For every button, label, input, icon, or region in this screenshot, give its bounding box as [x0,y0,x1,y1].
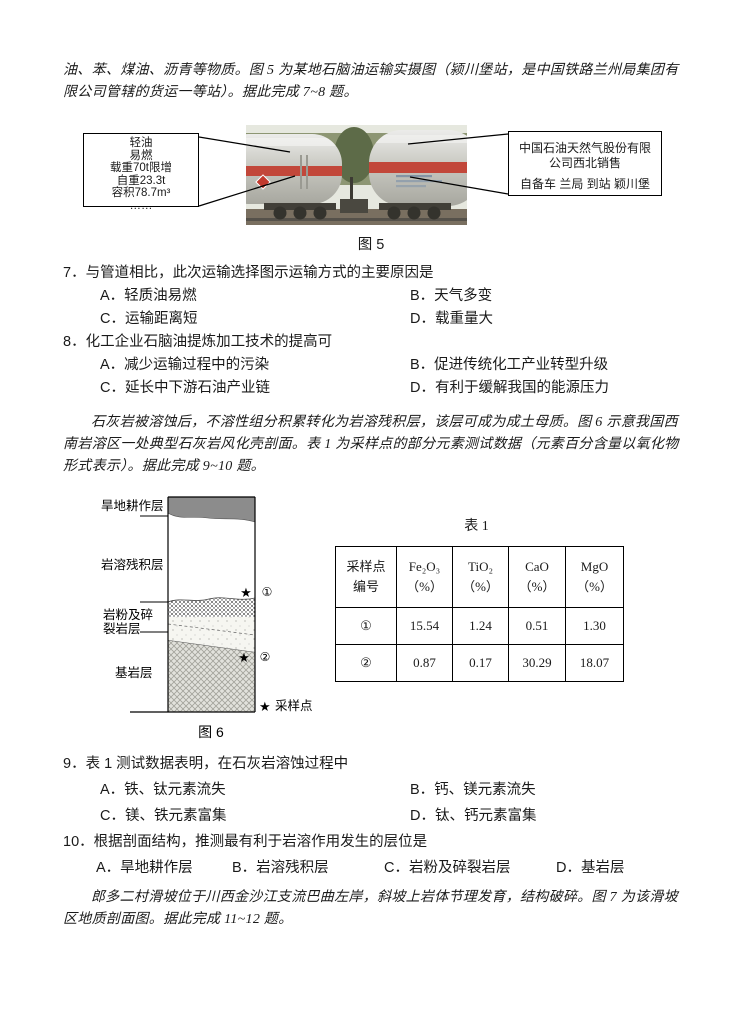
header-formula: TiO₂ [453,557,508,577]
callout-line [199,176,295,206]
cell-sample-1-id: ① [336,608,397,645]
callout-lines [63,125,677,225]
table1-caption: 表 1 [335,517,618,537]
question-8: 8．化工企业石脑油提炼加工技术的提高可 A．减少运输过程中的污染 B．促进传统化… [63,331,679,400]
header-mgo: MgO （%） [566,547,624,608]
sample-star-2: ★ [238,650,250,665]
header-formula: Fe₂O₃ [397,557,452,577]
layer-label-residual: 岩溶残积层 [101,557,164,572]
sample-mark-1: ① [262,585,273,599]
layer-label-topsoil: 旱地耕作层 [101,498,164,513]
figure6-caption: 图 6 [198,724,224,740]
option-8b: B．促进传统化工产业转型升级 [410,354,679,377]
layer-label-bedrock: 基岩层 [115,665,153,680]
figure-6: 旱地耕作层 岩溶残积层 岩粉及碎 裂岩层 基岩层 ★ ① ★ ② ★ 采样点 图… [63,493,335,748]
question-10-stem: 10．根据剖面结构，推测最有利于岩溶作用发生的层位是 [63,829,679,855]
option-9c: C．镁、铁元素富集 [100,803,410,829]
question-8-stem: 8．化工企业石脑油提炼加工技术的提高可 [63,331,679,354]
option-10a: A．旱地耕作层 [96,855,232,881]
table-1-block: 表 1 采样点 编号 Fe₂O₃ （%） TiO₂ （%） [335,493,624,748]
option-8c: C．延长中下游石油产业链 [100,377,410,400]
cell: 18.07 [566,645,624,682]
option-7a: A．轻质油易燃 [100,285,410,308]
weathering-profile-diagram: 旱地耕作层 岩溶残积层 岩粉及碎 裂岩层 基岩层 ★ ① ★ ② ★ 采样点 图… [63,493,325,743]
header-unit: （%） [453,577,508,597]
header-sample-id: 采样点 编号 [336,547,397,608]
layer-label-fractured-2: 裂岩层 [103,621,141,636]
question-7-options-row2: C．运输距离短 D．载重量大 [63,308,679,331]
cell: 1.30 [566,608,624,645]
header-unit: （%） [566,577,623,597]
legend-label: 采样点 [275,698,313,713]
intro-paragraph-limestone: 石灰岩被溶蚀后，不溶性组分积累转化为岩溶残积层，该层可成为成土母质。图 6 示意… [63,412,679,478]
question-10: 10．根据剖面结构，推测最有利于岩溶作用发生的层位是 A．旱地耕作层 B．岩溶残… [63,829,679,881]
question-10-options-row: A．旱地耕作层 B．岩溶残积层 C．岩粉及碎裂岩层 D．基岩层 [96,855,679,881]
option-7c: C．运输距离短 [100,308,410,331]
callout-line [199,137,290,152]
header-tio2: TiO₂ （%） [453,547,509,608]
intro-paragraph-landslide: 郎多二村滑坡位于川西金沙江支流巴曲左岸，斜坡上岩体节理发育，结构破碎。图 7 为… [63,887,679,931]
question-9: 9．表 1 测试数据表明，在石灰岩溶蚀过程中 A．铁、钛元素流失 B．钙、镁元素… [63,751,679,829]
question-7-stem: 7．与管道相比，此次运输选择图示运输方式的主要原因是 [63,262,679,285]
figure6-and-table-row: 旱地耕作层 岩溶残积层 岩粉及碎 裂岩层 基岩层 ★ ① ★ ② ★ 采样点 图… [63,493,679,748]
option-10c: C．岩粉及碎裂岩层 [384,855,556,881]
header-unit: （%） [509,577,565,597]
question-7-options-row1: A．轻质油易燃 B．天气多变 [63,285,679,308]
header-sample-id-line2: 编号 [336,577,396,597]
header-cao: CaO （%） [509,547,566,608]
option-7d: D．载重量大 [410,308,679,331]
table-header-row: 采样点 编号 Fe₂O₃ （%） TiO₂ （%） CaO （%） [336,547,624,608]
table-row: ① 15.54 1.24 0.51 1.30 [336,608,624,645]
option-9d: D．钛、钙元素富集 [410,803,679,829]
header-formula: CaO [509,557,565,577]
figure-5: 轻油 易燃 载重70t限增 自重23.3t 容积78.7m³ …… [63,125,679,225]
callout-line [410,177,508,194]
cell-sample-2-id: ② [336,645,397,682]
header-fe2o3: Fe₂O₃ （%） [397,547,453,608]
cell: 30.29 [509,645,566,682]
header-sample-id-line1: 采样点 [336,557,396,577]
cell: 15.54 [397,608,453,645]
callout-line [408,134,508,144]
cell: 0.17 [453,645,509,682]
figure5-caption: 图 5 [63,234,679,256]
exam-page: 油、苯、煤油、沥青等物质。图 5 为某地石脑油运输实摄图（颍川堡站，是中国铁路兰… [0,0,737,1020]
cell: 0.51 [509,608,566,645]
layer-label-fractured-1: 岩粉及碎 [103,607,153,622]
option-9a: A．铁、钛元素流失 [100,777,410,803]
element-test-data-table: 采样点 编号 Fe₂O₃ （%） TiO₂ （%） CaO （%） [335,546,624,682]
header-formula: MgO [566,557,623,577]
cell: 1.24 [453,608,509,645]
option-8a: A．减少运输过程中的污染 [100,354,410,377]
question-9-options-row1: A．铁、钛元素流失 B．钙、镁元素流失 [63,777,679,803]
sample-mark-2: ② [260,650,271,664]
option-10b: B．岩溶残积层 [232,855,384,881]
legend-star-icon: ★ [259,699,271,714]
option-9b: B．钙、镁元素流失 [410,777,679,803]
question-7: 7．与管道相比，此次运输选择图示运输方式的主要原因是 A．轻质油易燃 B．天气多… [63,262,679,331]
sample-star-1: ★ [240,585,252,600]
rock-powder-band [168,598,255,617]
option-7b: B．天气多变 [410,285,679,308]
option-8d: D．有利于缓解我国的能源压力 [410,377,679,400]
question-8-options-row2: C．延长中下游石油产业链 D．有利于缓解我国的能源压力 [63,377,679,400]
question-9-options-row2: C．镁、铁元素富集 D．钛、钙元素富集 [63,803,679,829]
header-unit: （%） [397,577,452,597]
question-8-options-row1: A．减少运输过程中的污染 B．促进传统化工产业转型升级 [63,354,679,377]
cell: 0.87 [397,645,453,682]
question-9-stem: 9．表 1 测试数据表明，在石灰岩溶蚀过程中 [63,751,679,777]
option-10d: D．基岩层 [556,855,679,881]
table-row: ② 0.87 0.17 30.29 18.07 [336,645,624,682]
intro-paragraph-oil: 油、苯、煤油、沥青等物质。图 5 为某地石脑油运输实摄图（颍川堡站，是中国铁路兰… [63,60,679,104]
